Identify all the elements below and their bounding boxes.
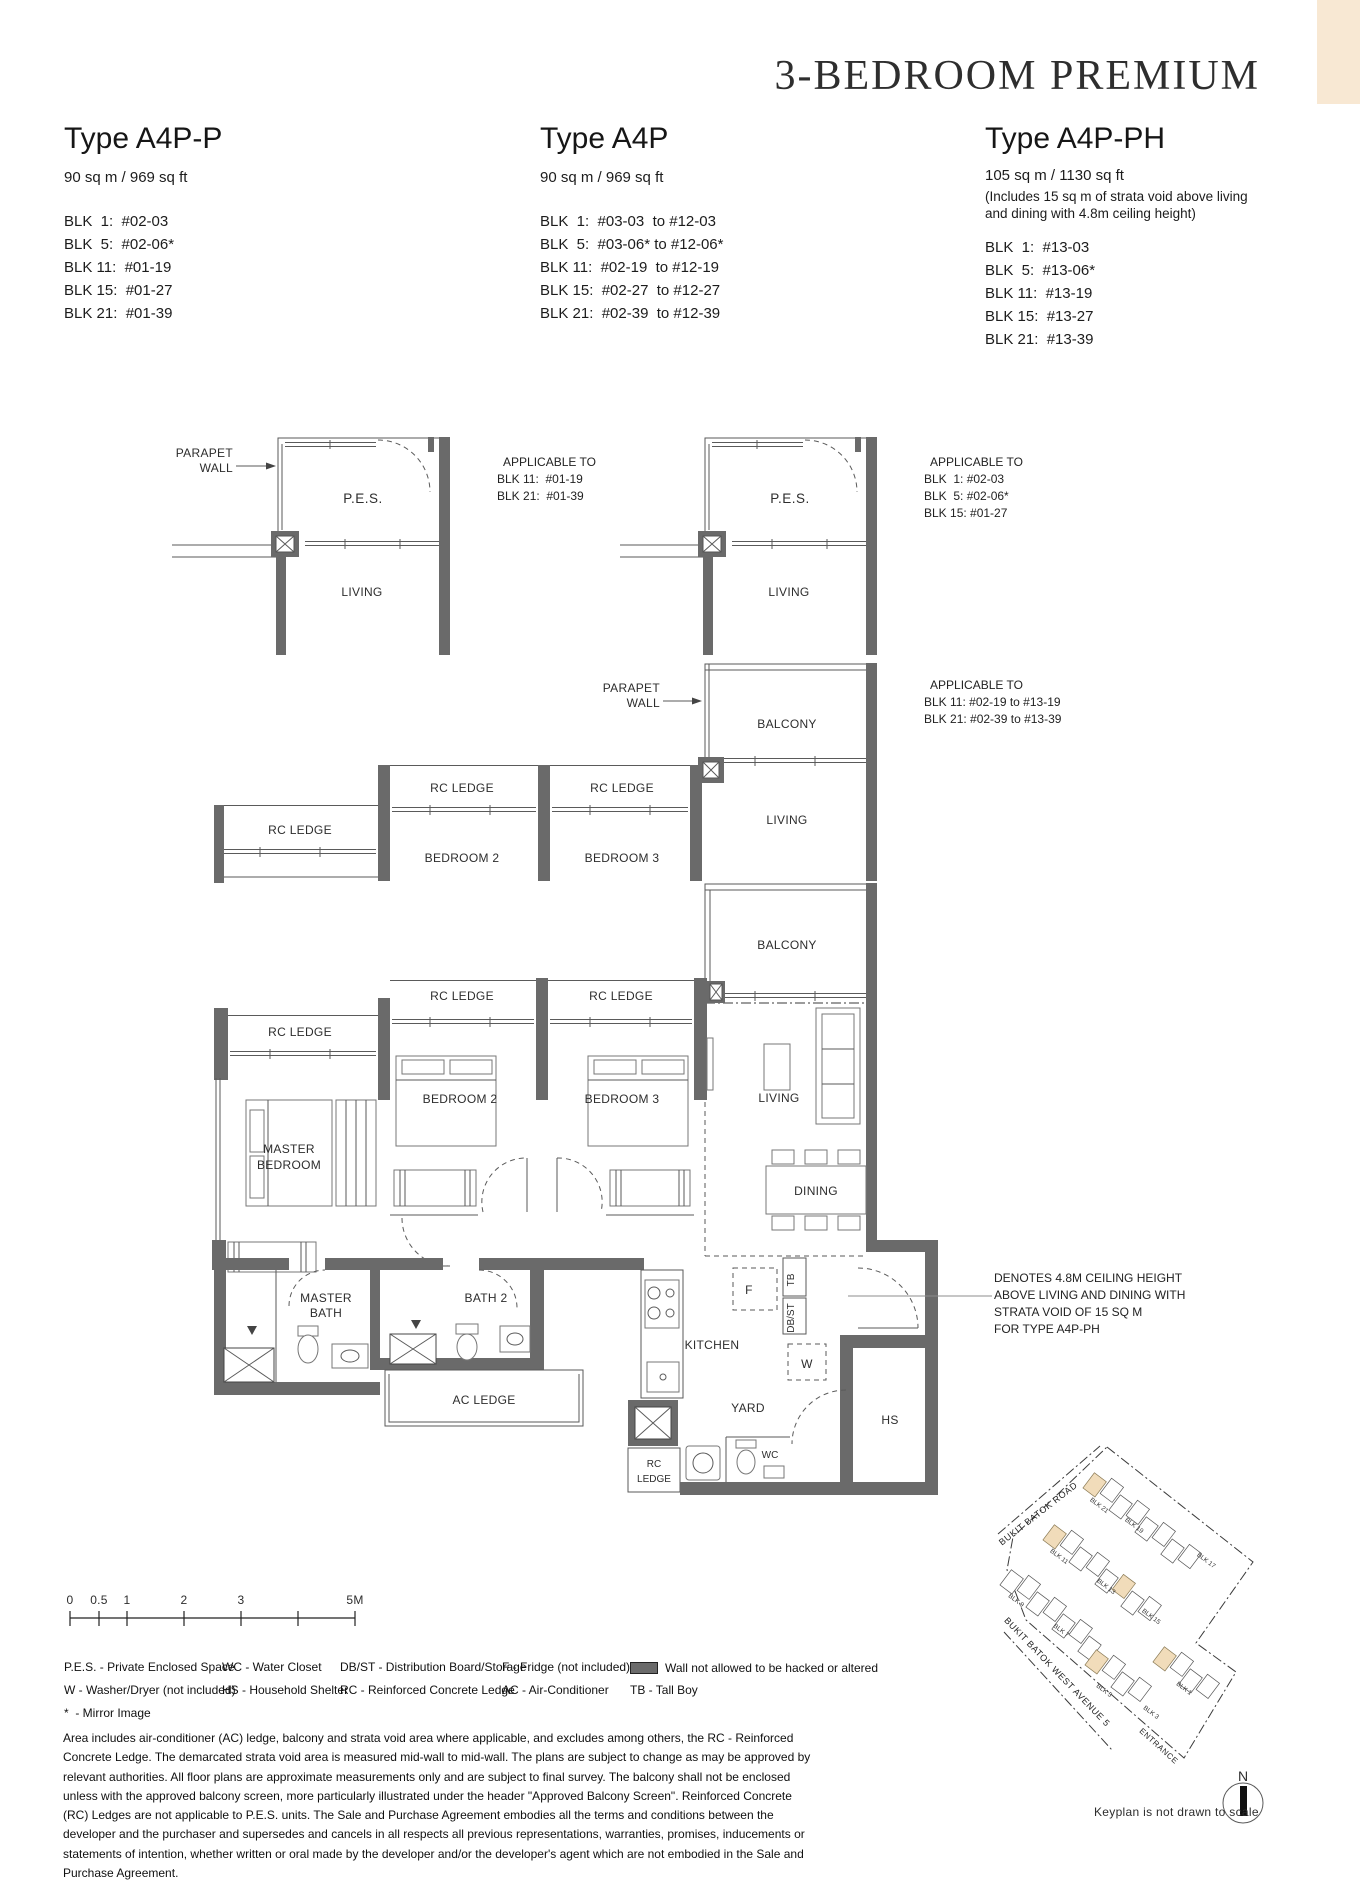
bedroom3-label: BEDROOM 3: [585, 1092, 660, 1106]
parapet-wall-label: PARAPET: [176, 446, 234, 460]
bedroom2-label: BEDROOM 2: [423, 1092, 498, 1106]
rc-ledge-label: RC LEDGE: [590, 781, 654, 795]
ac-ledge-label: AC LEDGE: [452, 1393, 515, 1407]
rc-ledge-label: RC LEDGE: [268, 823, 332, 837]
keyplan: BUKIT BATOK ROAD BUKIT BATOK WEST AVENUE…: [996, 1446, 1263, 1823]
balcony-label: BALCONY: [757, 938, 816, 952]
rc-ledge-small-label: LEDGE: [637, 1474, 671, 1485]
parapet-wall-label: WALL: [200, 461, 233, 475]
parapet-wall-label: WALL: [627, 696, 660, 710]
tallboy-label: TB: [786, 1273, 797, 1286]
hs-label: HS: [881, 1413, 898, 1427]
kitchen-label: KITCHEN: [685, 1338, 740, 1352]
balcony-label: BALCONY: [757, 717, 816, 731]
dbst-label: DB/ST: [786, 1303, 797, 1332]
svg-text:N: N: [1238, 1768, 1248, 1784]
scale-tick-label: 1: [124, 1593, 131, 1607]
blk-label: BLK 21: [1088, 1497, 1110, 1516]
living-label: LIVING: [768, 585, 809, 599]
yard-label: YARD: [731, 1401, 765, 1415]
washer-label: W: [801, 1357, 813, 1371]
rc-ledge-label: RC LEDGE: [430, 781, 494, 795]
rc-ledge-label: RC LEDGE: [589, 989, 653, 1003]
blk-label: BLK 5: [1095, 1683, 1114, 1699]
entrance-label: ENTRANCE: [1138, 1726, 1180, 1765]
living-label: LIVING: [758, 1091, 799, 1105]
master-bath-label: BATH: [310, 1306, 342, 1320]
variant-1-pes-plan: PARAPET WALL P.E.S. LIVING: [172, 437, 450, 655]
scale-tick-label: 3: [238, 1593, 245, 1607]
bath2-label: BATH 2: [465, 1291, 508, 1305]
variant-2-pes-plan: P.E.S. LIVING: [620, 437, 877, 655]
keyplan-note: Keyplan is not drawn to scale: [1094, 1805, 1259, 1819]
fridge-label: F: [745, 1283, 753, 1297]
master-bedroom-label: MASTER: [263, 1142, 315, 1156]
master-bedroom-label: BEDROOM: [257, 1158, 321, 1172]
variant-3-balcony-plan: PARAPET WALL BALCONY LIVING RC LEDGE RC …: [214, 663, 877, 883]
pes-label: P.E.S.: [770, 491, 810, 506]
living-label: LIVING: [766, 813, 807, 827]
keyplan-block-row-4: [1084, 1645, 1153, 1706]
keyplan-block-row-3: [996, 1565, 1108, 1660]
rc-ledge-label: RC LEDGE: [430, 989, 494, 1003]
main-unit-plan: BALCONY RC LEDGE RC LEDGE RC LEDGE MASTE…: [212, 883, 992, 1495]
floorplan-canvas: PARAPET WALL P.E.S. LIVING P.E.S. LIVING…: [0, 0, 1360, 1880]
bedroom2-label: BEDROOM 2: [425, 851, 500, 865]
scale-tick-label: 0: [67, 1593, 74, 1607]
pes-label: P.E.S.: [343, 491, 383, 506]
living-label: LIVING: [341, 585, 382, 599]
scale-tick-label: 2: [181, 1593, 188, 1607]
rc-ledge-small-label: RC: [647, 1459, 661, 1470]
rc-ledge-label: RC LEDGE: [268, 1025, 332, 1039]
bedroom3-label: BEDROOM 3: [585, 851, 660, 865]
blk-label: BLK 17: [1195, 1552, 1217, 1571]
scale-tick-label: 5M: [346, 1593, 363, 1607]
scale-tick-label: 0.5: [90, 1593, 108, 1607]
master-bath-label: MASTER: [300, 1291, 352, 1305]
blk-label: BLK 3: [1142, 1705, 1161, 1721]
dining-label: DINING: [794, 1184, 838, 1198]
wc-label: WC: [762, 1450, 779, 1461]
parapet-wall-label: PARAPET: [603, 681, 661, 695]
scale-bar: 0 0.5 1 2 3 5M: [67, 1593, 364, 1626]
